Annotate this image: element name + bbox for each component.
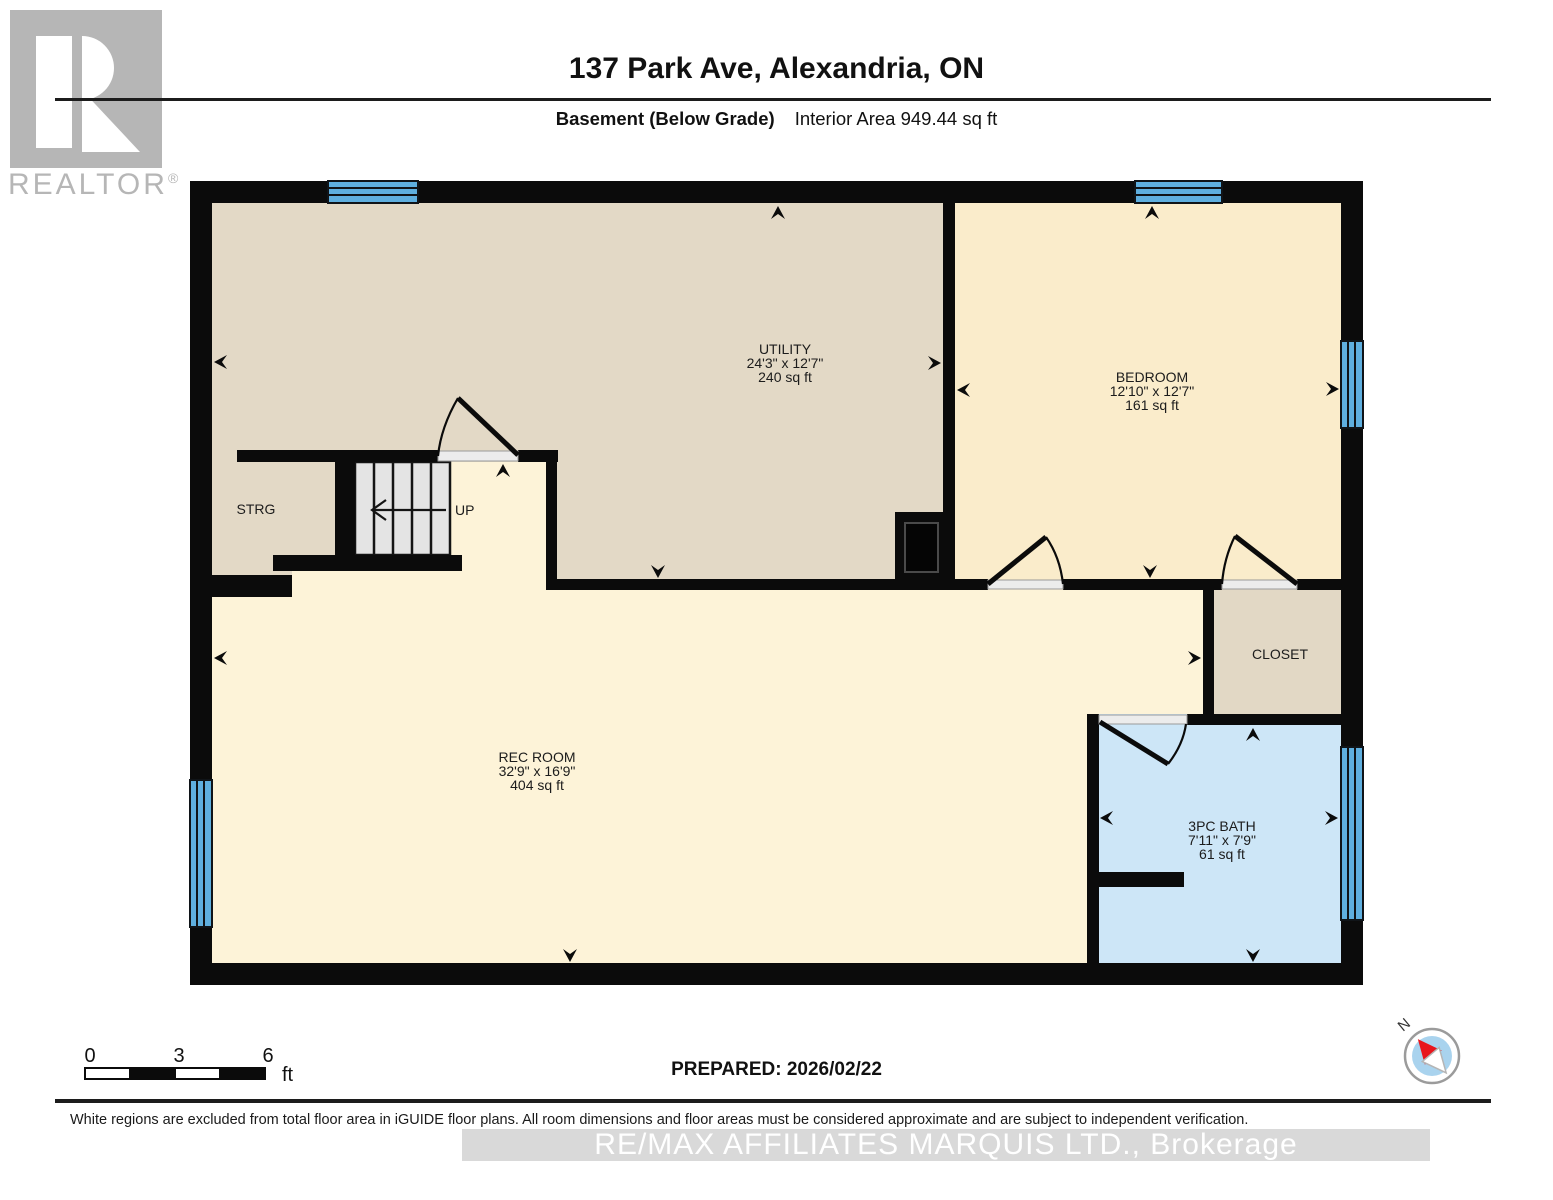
wall-outer-bottom — [190, 963, 1363, 985]
bedroom-top-window — [1135, 181, 1222, 203]
storage-label: STRG — [237, 501, 276, 517]
wall-bath-top — [1187, 714, 1343, 725]
brokerage-watermark: RE/MAX AFFILIATES MARQUIS LTD., Brokerag… — [462, 1129, 1430, 1161]
utility-floor — [212, 203, 955, 590]
bedroom-right-window — [1341, 341, 1363, 428]
wall-bath-stub — [1098, 872, 1184, 887]
prepared-date: PREPARED: 2026/02/22 — [0, 1059, 1553, 1081]
disclaimer-text: White regions are excluded from total fl… — [70, 1112, 1470, 1128]
staircase — [355, 462, 450, 555]
wall-bedroom-bottom-right — [1297, 579, 1343, 590]
bedroom-door-threshold — [988, 580, 1063, 589]
bath-area: 61 sq ft — [1199, 846, 1245, 862]
wall-bedroom-bottom-mid — [1063, 579, 1222, 590]
wall-utility-jog — [546, 450, 557, 590]
bath-door-threshold — [1099, 715, 1187, 724]
floorplan-canvas: UTILITY 24'3" x 12'7" 240 sq ft BEDROOM … — [0, 0, 1553, 1200]
utility-door-threshold — [438, 451, 518, 461]
rec-room-area: 404 sq ft — [510, 777, 564, 793]
utility-area: 240 sq ft — [758, 369, 812, 385]
chimney-inner — [905, 523, 938, 572]
wall-stairs-bottom — [273, 555, 462, 571]
utility-window — [328, 181, 418, 203]
rec-room-window — [190, 780, 212, 927]
closet-label: CLOSET — [1252, 646, 1308, 662]
wall-stairs-left — [335, 450, 355, 571]
bedroom-area: 161 sq ft — [1125, 397, 1179, 413]
footer-divider — [55, 1099, 1491, 1103]
floorplan-page: REALTOR® 137 Park Ave, Alexandria, ON Ba… — [0, 0, 1553, 1200]
wall-storage-bottom — [212, 575, 292, 597]
closet-door-threshold — [1222, 580, 1297, 589]
wall-utility-bottom — [546, 579, 988, 590]
rec-room-floor-patch — [292, 571, 460, 591]
compass-north-label: N — [1395, 1015, 1414, 1035]
bath-window — [1341, 747, 1363, 920]
stairs-up-label: UP — [455, 502, 474, 518]
wall-bath-left — [1087, 714, 1099, 963]
wall-closet-left — [1203, 588, 1214, 725]
stair-landing-floor — [450, 462, 546, 592]
